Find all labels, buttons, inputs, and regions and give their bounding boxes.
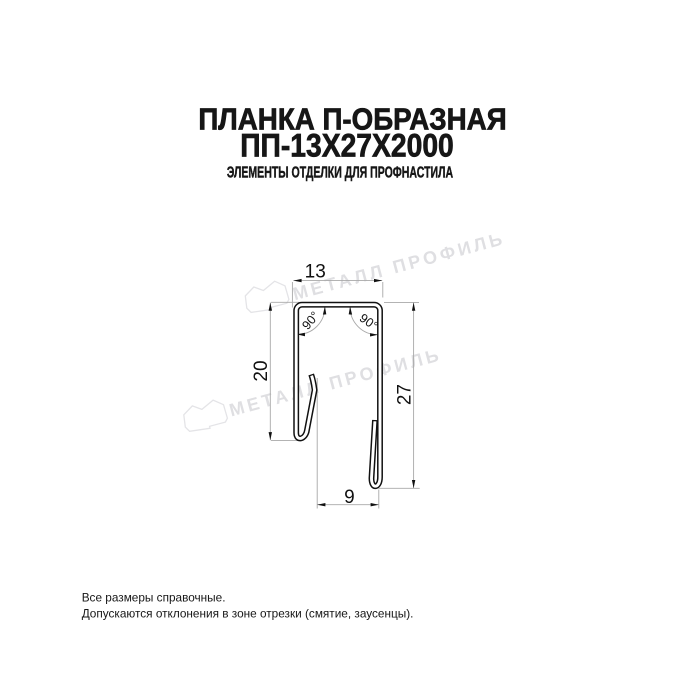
svg-text:ПП-13Х27Х2000: ПП-13Х27Х2000 — [240, 128, 454, 164]
svg-text:ЭЛЕМЕНТЫ ОТДЕЛКИ ДЛЯ ПРОФНАСТИ: ЭЛЕМЕНТЫ ОТДЕЛКИ ДЛЯ ПРОФНАСТИЛА — [227, 163, 454, 181]
svg-text:90°: 90° — [357, 311, 381, 333]
svg-text:27: 27 — [394, 384, 415, 405]
svg-text:9: 9 — [344, 487, 355, 508]
svg-text:20: 20 — [251, 360, 272, 381]
svg-text:Все размеры справочные.: Все размеры справочные. — [82, 591, 226, 605]
svg-text:Допускаются отклонения в зоне: Допускаются отклонения в зоне отрезки (с… — [82, 607, 414, 621]
svg-text:13: 13 — [305, 261, 326, 282]
svg-text:90°: 90° — [299, 309, 322, 332]
